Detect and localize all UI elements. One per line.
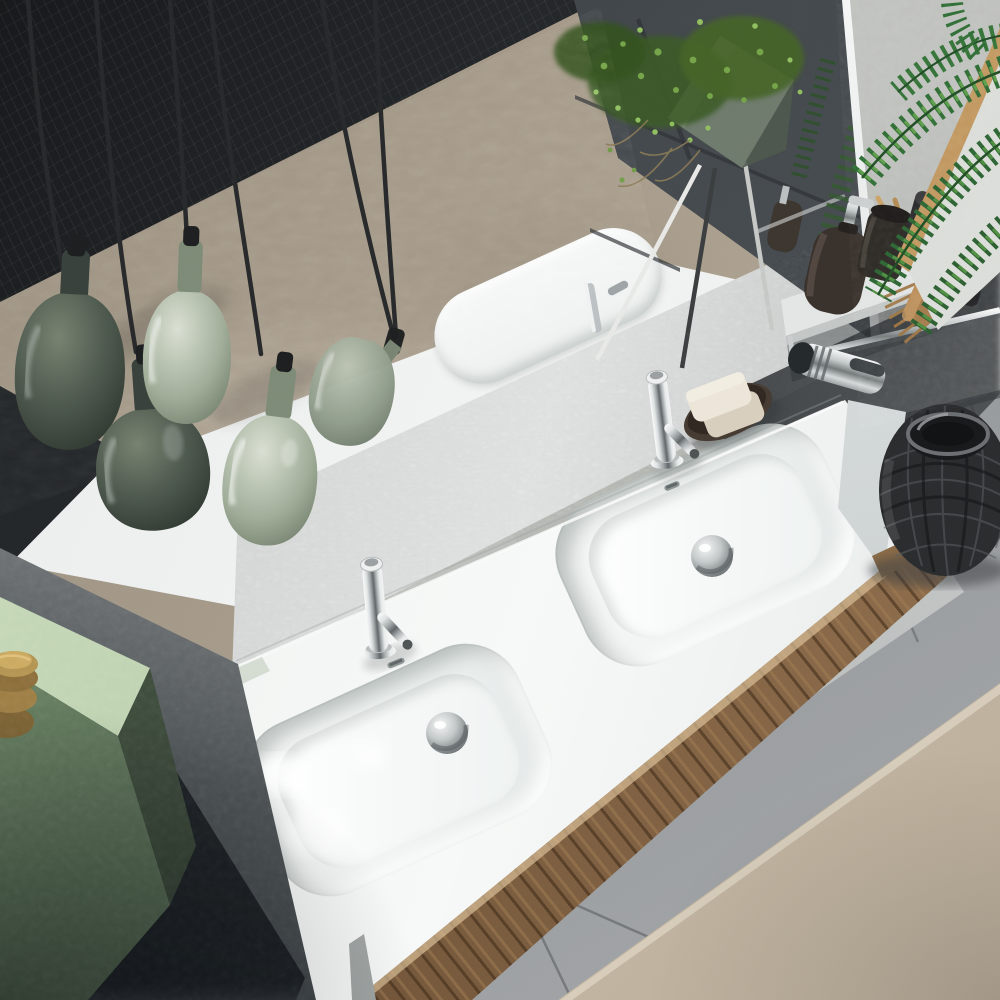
pendant-lamps-layer (0, 0, 1000, 1000)
pendant-lamp-1 (11, 231, 132, 452)
bathroom-scene (0, 0, 1000, 1000)
pendant-lamp-3 (141, 225, 236, 426)
pendant-lamp-5-reflection (300, 326, 406, 453)
